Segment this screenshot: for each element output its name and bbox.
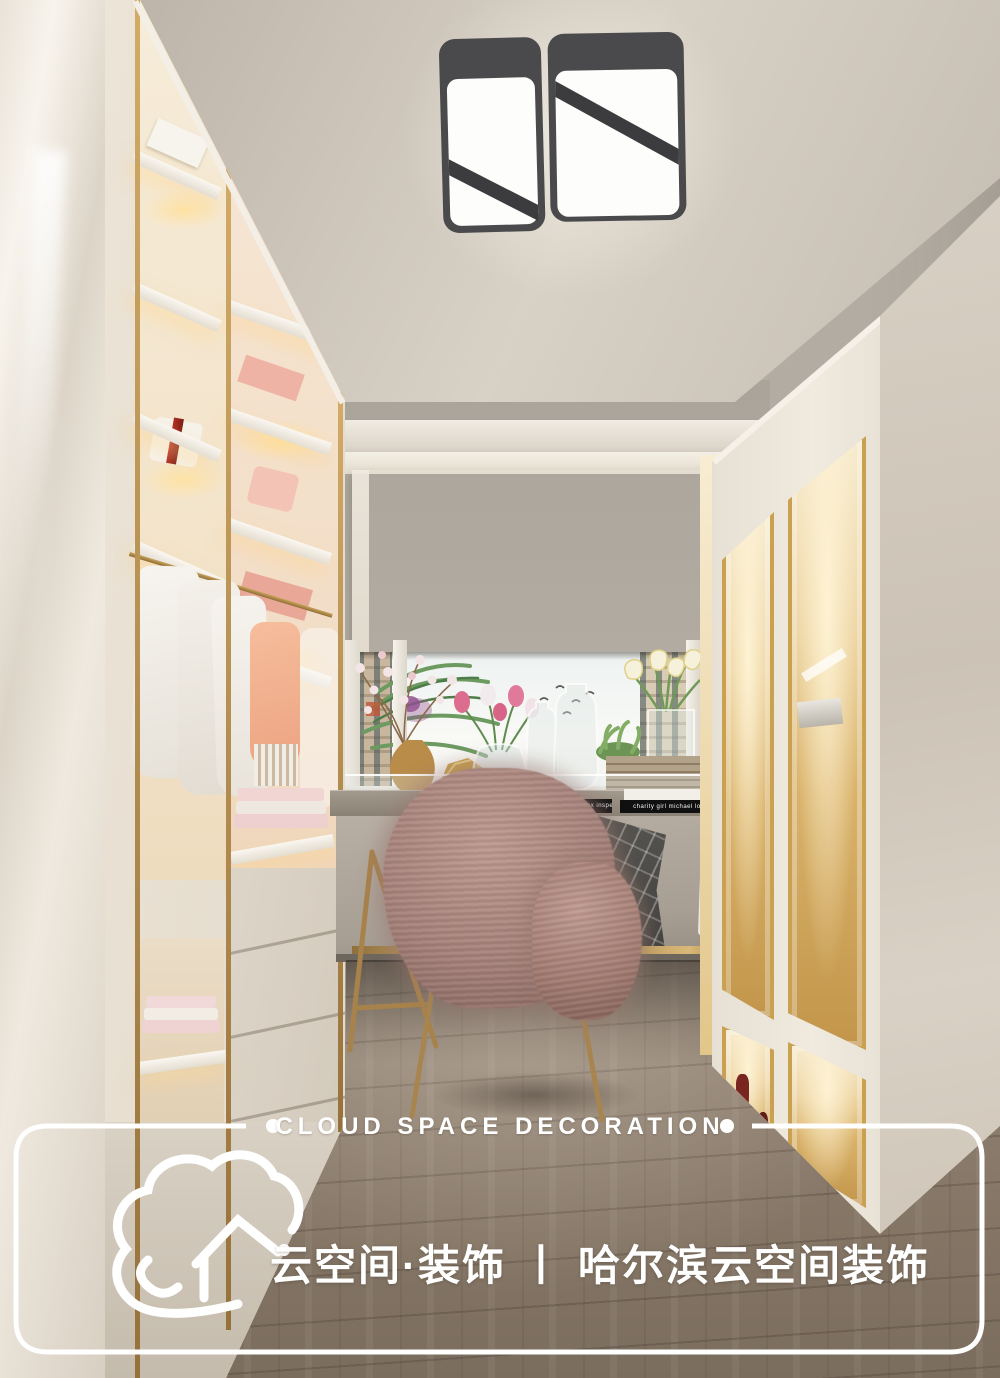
cloud-swirl [140, 1260, 178, 1293]
dressing-room-render: PETER CAREY the tax inspector charity gi… [0, 0, 1000, 1378]
divider-bar: 丨 [520, 1232, 564, 1293]
company-name-zh: 哈尔滨云空间装饰 [578, 1232, 930, 1293]
watermark-frame [0, 0, 1000, 1378]
watermark-tagline: CLOUD SPACE DECORATION [286, 1110, 714, 1144]
watermark-company-line: 云空间·装饰 丨 哈尔滨云空间装饰 [300, 1232, 900, 1292]
brand-name-zh: 云空间·装饰 [270, 1232, 506, 1293]
